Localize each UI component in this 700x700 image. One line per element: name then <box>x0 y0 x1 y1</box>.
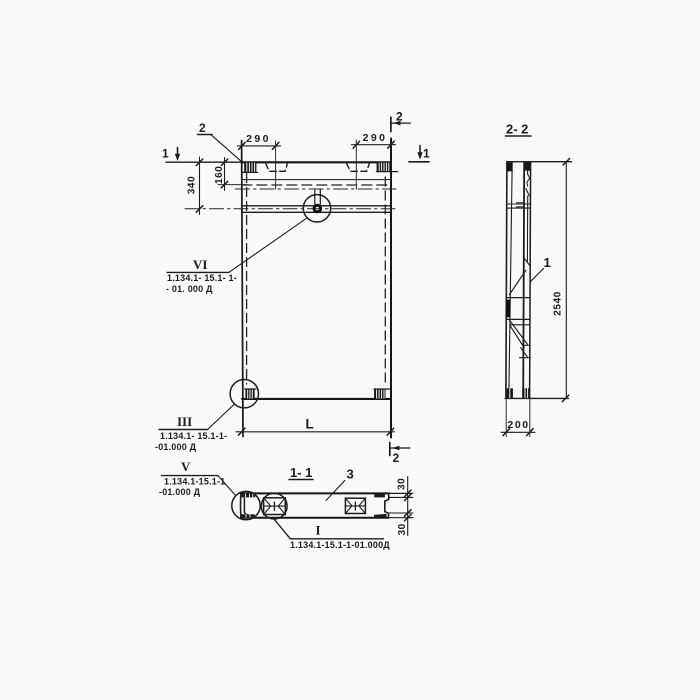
svg-text:1.134.1- 15.1- 1-: 1.134.1- 15.1- 1- <box>167 273 237 283</box>
svg-text:1.134.1-15.1-1: 1.134.1-15.1-1 <box>164 477 225 487</box>
svg-text:3: 3 <box>347 467 354 482</box>
svg-text:1.134.1-15.1-1-01.000Д: 1.134.1-15.1-1-01.000Д <box>290 540 390 550</box>
svg-text:2: 2 <box>393 451 400 465</box>
svg-text:III: III <box>177 414 192 429</box>
svg-text:V: V <box>181 459 191 474</box>
svg-text:2- 2: 2- 2 <box>506 122 528 137</box>
svg-text:30: 30 <box>397 523 408 535</box>
svg-text:290: 290 <box>363 132 388 144</box>
svg-text:1: 1 <box>423 147 430 161</box>
svg-text:1- 1: 1- 1 <box>290 465 312 480</box>
svg-text:-01.000 Д: -01.000 Д <box>159 487 201 497</box>
svg-text:1.134.1- 15.1-1-: 1.134.1- 15.1-1- <box>160 431 227 441</box>
svg-text:160: 160 <box>214 166 225 185</box>
svg-text:200: 200 <box>507 419 529 431</box>
svg-text:290: 290 <box>246 133 271 145</box>
svg-text:1: 1 <box>162 147 169 161</box>
svg-text:2: 2 <box>199 121 206 135</box>
svg-text:2540: 2540 <box>553 291 564 316</box>
svg-text:- 01. 000 Д: - 01. 000 Д <box>166 284 213 294</box>
svg-text:30: 30 <box>396 478 407 490</box>
svg-text:340: 340 <box>186 176 197 195</box>
svg-text:VI: VI <box>193 257 207 272</box>
svg-text:L: L <box>305 417 313 432</box>
svg-text:-01.000 Д: -01.000 Д <box>155 442 197 452</box>
svg-text:I: I <box>316 523 321 538</box>
svg-text:1: 1 <box>544 255 551 270</box>
